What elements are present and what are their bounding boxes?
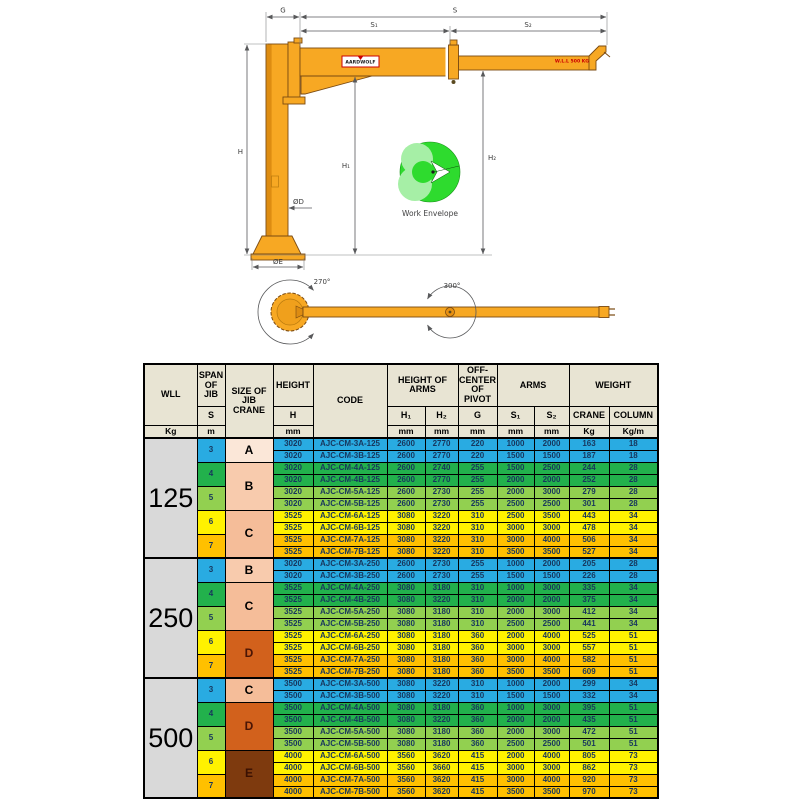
jib-tip bbox=[589, 46, 606, 70]
spec-cell-column: 73 bbox=[609, 786, 658, 798]
spec-cell-code: AJC-CM-3B-250 bbox=[313, 570, 387, 582]
header-h2-sym: H₂ bbox=[425, 406, 458, 425]
spec-cell-crane: 395 bbox=[569, 702, 609, 714]
spec-cell-s1: 2500 bbox=[497, 738, 534, 750]
header-wll: WLL bbox=[144, 364, 197, 425]
spec-cell-g: 255 bbox=[458, 462, 497, 474]
size-value-cell: C bbox=[225, 510, 273, 558]
spec-table: WLL SPAN OF JIB SIZE OF JIB CRANE HEIGHT… bbox=[143, 363, 659, 799]
spec-cell-h2: 3180 bbox=[425, 618, 458, 630]
spec-cell-s2: 4000 bbox=[534, 630, 569, 642]
spec-cell-h2: 2730 bbox=[425, 486, 458, 498]
spec-row: 74000AJC-CM-7A-5003560362041530004000920… bbox=[144, 774, 658, 786]
spec-cell-h2: 2730 bbox=[425, 558, 458, 570]
span-value-cell: 4 bbox=[197, 582, 225, 606]
spec-cell-g: 220 bbox=[458, 450, 497, 462]
spec-row: 5003C3500AJC-CM-3A-500308032203101000200… bbox=[144, 678, 658, 690]
spec-cell-h1: 3080 bbox=[387, 726, 425, 738]
spec-cell-g: 255 bbox=[458, 486, 497, 498]
spec-cell-s2: 3000 bbox=[534, 702, 569, 714]
spec-cell-s2: 2000 bbox=[534, 438, 569, 450]
header-code: CODE bbox=[313, 364, 387, 438]
spec-cell-code: AJC-CM-3A-250 bbox=[313, 558, 387, 570]
spec-row: 4B3020AJC-CM-4A-125260027402551500250024… bbox=[144, 462, 658, 474]
spec-cell-h1: 2600 bbox=[387, 438, 425, 450]
spec-cell-s2: 1500 bbox=[534, 570, 569, 582]
spec-cell-column: 18 bbox=[609, 438, 658, 450]
spec-cell-h1: 2600 bbox=[387, 498, 425, 510]
spec-cell-crane: 920 bbox=[569, 774, 609, 786]
spec-cell-h1: 2600 bbox=[387, 450, 425, 462]
wll-value-cell: 125 bbox=[144, 438, 197, 558]
jib-gusset bbox=[301, 76, 372, 94]
spec-cell-s2: 4000 bbox=[534, 750, 569, 762]
spec-cell-h1: 3080 bbox=[387, 510, 425, 522]
spec-cell-g: 310 bbox=[458, 678, 497, 690]
spec-cell-column: 28 bbox=[609, 498, 658, 510]
spec-cell-h2: 3220 bbox=[425, 714, 458, 726]
unit-s2: mm bbox=[534, 425, 569, 438]
spec-cell-height: 3020 bbox=[273, 486, 313, 498]
jib-pivot-joint bbox=[449, 45, 459, 79]
spec-cell-crane: 441 bbox=[569, 618, 609, 630]
size-value-cell: A bbox=[225, 438, 273, 462]
spec-cell-column: 18 bbox=[609, 450, 658, 462]
spec-cell-crane: 279 bbox=[569, 486, 609, 498]
spec-cell-s2: 3000 bbox=[534, 522, 569, 534]
spec-cell-h2: 2730 bbox=[425, 570, 458, 582]
spec-cell-column: 51 bbox=[609, 642, 658, 654]
spec-cell-s2: 2000 bbox=[534, 678, 569, 690]
spec-row: 1253A3020AJC-CM-3A-125260027702201000200… bbox=[144, 438, 658, 450]
spec-cell-s1: 1500 bbox=[497, 450, 534, 462]
spec-cell-s2: 1500 bbox=[534, 450, 569, 462]
unit-s1: mm bbox=[497, 425, 534, 438]
dim-label-oe: ØE bbox=[273, 258, 283, 266]
spec-cell-height: 3020 bbox=[273, 450, 313, 462]
spec-cell-g: 310 bbox=[458, 618, 497, 630]
spec-cell-column: 51 bbox=[609, 714, 658, 726]
spec-cell-h2: 3220 bbox=[425, 594, 458, 606]
spec-cell-crane: 252 bbox=[569, 474, 609, 486]
header-s1-sym: S₁ bbox=[497, 406, 534, 425]
spec-cell-column: 51 bbox=[609, 666, 658, 678]
spec-cell-code: AJC-CM-5A-250 bbox=[313, 606, 387, 618]
spec-cell-crane: 506 bbox=[569, 534, 609, 546]
spec-cell-height: 4000 bbox=[273, 786, 313, 798]
spec-cell-column: 73 bbox=[609, 762, 658, 774]
spec-cell-code: AJC-CM-5A-125 bbox=[313, 486, 387, 498]
spec-cell-s1: 1500 bbox=[497, 690, 534, 702]
spec-cell-s2: 3500 bbox=[534, 546, 569, 558]
spec-cell-h2: 3180 bbox=[425, 702, 458, 714]
spec-cell-s1: 3000 bbox=[497, 774, 534, 786]
spec-cell-h2: 3180 bbox=[425, 630, 458, 642]
spec-cell-column: 28 bbox=[609, 486, 658, 498]
spec-cell-code: AJC-CM-6B-250 bbox=[313, 642, 387, 654]
spec-cell-height: 3525 bbox=[273, 630, 313, 642]
spec-cell-s2: 3000 bbox=[534, 726, 569, 738]
span-value-cell: 5 bbox=[197, 726, 225, 750]
spec-cell-code: AJC-CM-4A-500 bbox=[313, 702, 387, 714]
size-value-cell: E bbox=[225, 750, 273, 798]
spec-cell-h1: 3560 bbox=[387, 762, 425, 774]
spec-cell-code: AJC-CM-7B-125 bbox=[313, 546, 387, 558]
spec-cell-height: 3500 bbox=[273, 714, 313, 726]
spec-cell-g: 415 bbox=[458, 750, 497, 762]
spec-row: 53500AJC-CM-5A-5003080318036020003000472… bbox=[144, 726, 658, 738]
spec-cell-s2: 3500 bbox=[534, 510, 569, 522]
spec-cell-h2: 2740 bbox=[425, 462, 458, 474]
spec-cell-crane: 187 bbox=[569, 450, 609, 462]
spec-cell-column: 51 bbox=[609, 630, 658, 642]
spec-cell-column: 34 bbox=[609, 690, 658, 702]
spec-cell-height: 3500 bbox=[273, 726, 313, 738]
spec-cell-s2: 2500 bbox=[534, 462, 569, 474]
spec-row: 6C3525AJC-CM-6A-125308032203102500350044… bbox=[144, 510, 658, 522]
spec-cell-height: 3020 bbox=[273, 438, 313, 450]
spec-cell-code: AJC-CM-4B-250 bbox=[313, 594, 387, 606]
spec-cell-column: 34 bbox=[609, 606, 658, 618]
spec-cell-h2: 2770 bbox=[425, 438, 458, 450]
spec-cell-code: AJC-CM-5B-500 bbox=[313, 738, 387, 750]
spec-cell-code: AJC-CM-5B-250 bbox=[313, 618, 387, 630]
spec-cell-height: 4000 bbox=[273, 750, 313, 762]
work-envelope-diagram: Work Envelope bbox=[398, 142, 460, 218]
spec-cell-h2: 3220 bbox=[425, 522, 458, 534]
spec-cell-crane: 527 bbox=[569, 546, 609, 558]
spec-cell-h2: 3180 bbox=[425, 666, 458, 678]
wll-value-cell: 250 bbox=[144, 558, 197, 678]
spec-cell-code: AJC-CM-4B-125 bbox=[313, 474, 387, 486]
spec-cell-s2: 2500 bbox=[534, 618, 569, 630]
spec-cell-s2: 4000 bbox=[534, 534, 569, 546]
spec-cell-code: AJC-CM-3B-500 bbox=[313, 690, 387, 702]
dim-label-s: S bbox=[453, 7, 458, 15]
span-value-cell: 4 bbox=[197, 462, 225, 486]
spec-cell-h1: 3080 bbox=[387, 738, 425, 750]
spec-cell-g: 360 bbox=[458, 726, 497, 738]
spec-cell-column: 51 bbox=[609, 654, 658, 666]
spec-cell-h2: 3660 bbox=[425, 762, 458, 774]
spec-cell-column: 34 bbox=[609, 522, 658, 534]
header-height: HEIGHT bbox=[273, 364, 313, 406]
spec-cell-s2: 3500 bbox=[534, 786, 569, 798]
spec-cell-crane: 472 bbox=[569, 726, 609, 738]
spec-cell-h1: 2600 bbox=[387, 462, 425, 474]
spec-cell-h1: 3080 bbox=[387, 522, 425, 534]
spec-cell-height: 3500 bbox=[273, 702, 313, 714]
spec-row: 4D3500AJC-CM-4A-500308031803601000300039… bbox=[144, 702, 658, 714]
spec-cell-height: 3020 bbox=[273, 570, 313, 582]
spec-cell-code: AJC-CM-5B-125 bbox=[313, 498, 387, 510]
spec-cell-g: 360 bbox=[458, 654, 497, 666]
header-column: COLUMN bbox=[609, 406, 658, 425]
spec-cell-height: 3525 bbox=[273, 546, 313, 558]
spec-cell-height: 3525 bbox=[273, 606, 313, 618]
spec-cell-s1: 2000 bbox=[497, 606, 534, 618]
spec-cell-h2: 3180 bbox=[425, 738, 458, 750]
spec-cell-s2: 3000 bbox=[534, 642, 569, 654]
spec-cell-height: 3020 bbox=[273, 558, 313, 570]
spec-cell-crane: 435 bbox=[569, 714, 609, 726]
spec-cell-s2: 2500 bbox=[534, 738, 569, 750]
spec-cell-h1: 3560 bbox=[387, 786, 425, 798]
spec-cell-s1: 2000 bbox=[497, 750, 534, 762]
spec-cell-s2: 2000 bbox=[534, 558, 569, 570]
spec-cell-code: AJC-CM-7A-500 bbox=[313, 774, 387, 786]
spec-cell-height: 4000 bbox=[273, 762, 313, 774]
header-s2-sym: S₂ bbox=[534, 406, 569, 425]
spec-cell-column: 28 bbox=[609, 474, 658, 486]
spec-cell-h2: 3180 bbox=[425, 606, 458, 618]
spec-cell-s1: 1500 bbox=[497, 462, 534, 474]
spec-cell-column: 28 bbox=[609, 570, 658, 582]
header-height-sym: H bbox=[273, 406, 313, 425]
spec-cell-s1: 2000 bbox=[497, 726, 534, 738]
dim-label-s2: S₂ bbox=[524, 21, 531, 29]
spec-cell-g: 360 bbox=[458, 714, 497, 726]
dim-label-h1: H₁ bbox=[342, 162, 350, 170]
rotation-label-mid: 300° bbox=[444, 282, 461, 290]
spec-cell-crane: 501 bbox=[569, 738, 609, 750]
spec-cell-s2: 3000 bbox=[534, 582, 569, 594]
spec-cell-height: 3525 bbox=[273, 522, 313, 534]
spec-sheet: AARDWOLF W.L.L 500 KG G S S₁ S₂ bbox=[0, 0, 800, 800]
header-span: SPAN OF JIB bbox=[197, 364, 225, 406]
spec-cell-h2: 3620 bbox=[425, 750, 458, 762]
spec-cell-column: 28 bbox=[609, 462, 658, 474]
spec-cell-h1: 3080 bbox=[387, 546, 425, 558]
header-height-of-arms: HEIGHT OF ARMS bbox=[387, 364, 458, 406]
spec-cell-g: 415 bbox=[458, 774, 497, 786]
span-value-cell: 6 bbox=[197, 630, 225, 654]
spec-cell-h1: 3080 bbox=[387, 582, 425, 594]
spec-cell-code: AJC-CM-6B-500 bbox=[313, 762, 387, 774]
size-value-cell: B bbox=[225, 558, 273, 582]
spec-cell-s2: 3500 bbox=[534, 666, 569, 678]
spec-cell-h1: 3080 bbox=[387, 534, 425, 546]
spec-cell-h1: 3080 bbox=[387, 594, 425, 606]
unit-h2: mm bbox=[425, 425, 458, 438]
spec-cell-h1: 3080 bbox=[387, 678, 425, 690]
spec-cell-crane: 582 bbox=[569, 654, 609, 666]
spec-cell-h1: 3080 bbox=[387, 690, 425, 702]
spec-cell-g: 310 bbox=[458, 522, 497, 534]
spec-cell-code: AJC-CM-4A-250 bbox=[313, 582, 387, 594]
spec-cell-s1: 1000 bbox=[497, 702, 534, 714]
spec-cell-h2: 3180 bbox=[425, 582, 458, 594]
spec-cell-code: AJC-CM-3A-125 bbox=[313, 438, 387, 450]
spec-cell-s1: 2000 bbox=[497, 474, 534, 486]
crane-technical-drawing: AARDWOLF W.L.L 500 KG G S S₁ S₂ bbox=[0, 0, 800, 360]
spec-table-header: WLL SPAN OF JIB SIZE OF JIB CRANE HEIGHT… bbox=[144, 364, 658, 438]
spec-cell-crane: 862 bbox=[569, 762, 609, 774]
size-value-cell: D bbox=[225, 630, 273, 678]
work-envelope-label: Work Envelope bbox=[402, 209, 458, 218]
spec-cell-height: 3525 bbox=[273, 654, 313, 666]
header-h1-sym: H₁ bbox=[387, 406, 425, 425]
spec-cell-crane: 478 bbox=[569, 522, 609, 534]
spec-cell-h2: 3620 bbox=[425, 786, 458, 798]
spec-row: 73525AJC-CM-7A-1253080322031030004000506… bbox=[144, 534, 658, 546]
spec-row: 53020AJC-CM-5A-1252600273025520003000279… bbox=[144, 486, 658, 498]
spec-cell-height: 3525 bbox=[273, 534, 313, 546]
spec-cell-g: 255 bbox=[458, 498, 497, 510]
spec-cell-h2: 3180 bbox=[425, 642, 458, 654]
span-value-cell: 3 bbox=[197, 558, 225, 582]
spec-cell-h1: 2600 bbox=[387, 570, 425, 582]
spec-row: 73525AJC-CM-7A-2503080318036030004000582… bbox=[144, 654, 658, 666]
spec-cell-h1: 3080 bbox=[387, 702, 425, 714]
spec-cell-g: 310 bbox=[458, 594, 497, 606]
spec-cell-s1: 3000 bbox=[497, 522, 534, 534]
header-size: SIZE OF JIB CRANE bbox=[225, 364, 273, 438]
spec-cell-h2: 3620 bbox=[425, 774, 458, 786]
spec-cell-code: AJC-CM-7A-125 bbox=[313, 534, 387, 546]
header-weight: WEIGHT bbox=[569, 364, 658, 406]
spec-cell-height: 3500 bbox=[273, 678, 313, 690]
spec-cell-column: 34 bbox=[609, 510, 658, 522]
spec-cell-s2: 3000 bbox=[534, 606, 569, 618]
spec-cell-h1: 3080 bbox=[387, 654, 425, 666]
spec-cell-s1: 2000 bbox=[497, 486, 534, 498]
rotation-label-base: 270° bbox=[314, 278, 331, 286]
dim-label-g: G bbox=[280, 7, 285, 15]
spec-cell-code: AJC-CM-7A-250 bbox=[313, 654, 387, 666]
spec-cell-height: 3500 bbox=[273, 738, 313, 750]
spec-cell-h2: 3220 bbox=[425, 510, 458, 522]
spec-cell-code: AJC-CM-7B-250 bbox=[313, 666, 387, 678]
crane-base bbox=[253, 236, 301, 254]
spec-cell-h1: 3080 bbox=[387, 630, 425, 642]
span-value-cell: 4 bbox=[197, 702, 225, 726]
dim-label-h2: H₂ bbox=[488, 154, 496, 162]
span-value-cell: 6 bbox=[197, 750, 225, 774]
spec-cell-code: AJC-CM-7B-500 bbox=[313, 786, 387, 798]
spec-cell-column: 28 bbox=[609, 558, 658, 570]
spec-cell-s1: 3000 bbox=[497, 654, 534, 666]
spec-cell-g: 310 bbox=[458, 582, 497, 594]
spec-cell-column: 73 bbox=[609, 774, 658, 786]
spec-cell-crane: 443 bbox=[569, 510, 609, 522]
spec-cell-s2: 3000 bbox=[534, 762, 569, 774]
spec-cell-height: 3020 bbox=[273, 462, 313, 474]
spec-cell-h2: 3220 bbox=[425, 678, 458, 690]
spec-cell-column: 34 bbox=[609, 618, 658, 630]
spec-cell-g: 360 bbox=[458, 642, 497, 654]
spec-cell-height: 3525 bbox=[273, 642, 313, 654]
spec-cell-height: 3525 bbox=[273, 666, 313, 678]
spec-cell-s1: 2000 bbox=[497, 714, 534, 726]
spec-cell-h2: 2770 bbox=[425, 474, 458, 486]
spec-cell-g: 310 bbox=[458, 510, 497, 522]
spec-cell-g: 255 bbox=[458, 558, 497, 570]
spec-cell-s1: 3000 bbox=[497, 642, 534, 654]
size-value-cell: B bbox=[225, 462, 273, 510]
spec-row: 53525AJC-CM-5A-2503080318031020003000412… bbox=[144, 606, 658, 618]
spec-cell-column: 34 bbox=[609, 678, 658, 690]
spec-cell-column: 34 bbox=[609, 594, 658, 606]
spec-cell-crane: 301 bbox=[569, 498, 609, 510]
size-value-cell: C bbox=[225, 678, 273, 702]
spec-cell-h2: 3180 bbox=[425, 654, 458, 666]
spec-cell-s1: 1000 bbox=[497, 582, 534, 594]
header-arms: ARMS bbox=[497, 364, 569, 406]
unit-g: mm bbox=[458, 425, 497, 438]
spec-cell-s1: 1000 bbox=[497, 558, 534, 570]
spec-cell-crane: 375 bbox=[569, 594, 609, 606]
spec-cell-s1: 3500 bbox=[497, 786, 534, 798]
header-g-sym: G bbox=[458, 406, 497, 425]
spec-cell-code: AJC-CM-6A-125 bbox=[313, 510, 387, 522]
spec-cell-s1: 1000 bbox=[497, 678, 534, 690]
spec-cell-code: AJC-CM-6A-250 bbox=[313, 630, 387, 642]
span-value-cell: 3 bbox=[197, 678, 225, 702]
spec-cell-s1: 2500 bbox=[497, 510, 534, 522]
spec-cell-h1: 3080 bbox=[387, 666, 425, 678]
spec-cell-crane: 332 bbox=[569, 690, 609, 702]
spec-cell-h1: 3560 bbox=[387, 750, 425, 762]
dim-label-s1: S₁ bbox=[370, 21, 377, 29]
spec-cell-column: 51 bbox=[609, 702, 658, 714]
spec-cell-column: 73 bbox=[609, 750, 658, 762]
spec-cell-code: AJC-CM-3A-500 bbox=[313, 678, 387, 690]
spec-cell-h1: 2600 bbox=[387, 486, 425, 498]
spec-cell-crane: 805 bbox=[569, 750, 609, 762]
spec-cell-height: 3525 bbox=[273, 594, 313, 606]
unit-wll: Kg bbox=[144, 425, 197, 438]
header-crane: CRANE bbox=[569, 406, 609, 425]
spec-cell-crane: 609 bbox=[569, 666, 609, 678]
spec-row: 6E4000AJC-CM-6A-500356036204152000400080… bbox=[144, 750, 658, 762]
size-value-cell: C bbox=[225, 582, 273, 630]
spec-cell-crane: 226 bbox=[569, 570, 609, 582]
spec-row: 4C3525AJC-CM-4A-250308031803101000300033… bbox=[144, 582, 658, 594]
spec-cell-h2: 3220 bbox=[425, 690, 458, 702]
spec-cell-g: 310 bbox=[458, 546, 497, 558]
spec-cell-h1: 2600 bbox=[387, 558, 425, 570]
unit-height: mm bbox=[273, 425, 313, 438]
wll-value-cell: 500 bbox=[144, 678, 197, 798]
spec-cell-code: AJC-CM-4B-500 bbox=[313, 714, 387, 726]
spec-cell-height: 3500 bbox=[273, 690, 313, 702]
spec-cell-s2: 1500 bbox=[534, 690, 569, 702]
dim-label-od: ØD bbox=[293, 198, 304, 206]
spec-row: 2503B3020AJC-CM-3A-250260027302551000200… bbox=[144, 558, 658, 570]
spec-cell-s2: 4000 bbox=[534, 774, 569, 786]
span-value-cell: 5 bbox=[197, 486, 225, 510]
spec-cell-height: 3020 bbox=[273, 474, 313, 486]
spec-table-body: 1253A3020AJC-CM-3A-125260027702201000200… bbox=[144, 438, 658, 798]
spec-cell-column: 34 bbox=[609, 582, 658, 594]
spec-cell-s1: 3500 bbox=[497, 546, 534, 558]
header-span-sym: S bbox=[197, 406, 225, 425]
spec-cell-column: 34 bbox=[609, 546, 658, 558]
spec-cell-h1: 3080 bbox=[387, 642, 425, 654]
spec-cell-s1: 2000 bbox=[497, 594, 534, 606]
spec-cell-column: 51 bbox=[609, 726, 658, 738]
spec-cell-crane: 205 bbox=[569, 558, 609, 570]
spec-cell-crane: 412 bbox=[569, 606, 609, 618]
spec-cell-s2: 2000 bbox=[534, 474, 569, 486]
jib-back-plate bbox=[288, 42, 300, 100]
span-value-cell: 7 bbox=[197, 774, 225, 798]
spec-cell-s1: 2500 bbox=[497, 498, 534, 510]
spec-cell-s1: 3000 bbox=[497, 534, 534, 546]
spec-cell-s1: 3500 bbox=[497, 666, 534, 678]
spec-cell-h2: 3220 bbox=[425, 534, 458, 546]
